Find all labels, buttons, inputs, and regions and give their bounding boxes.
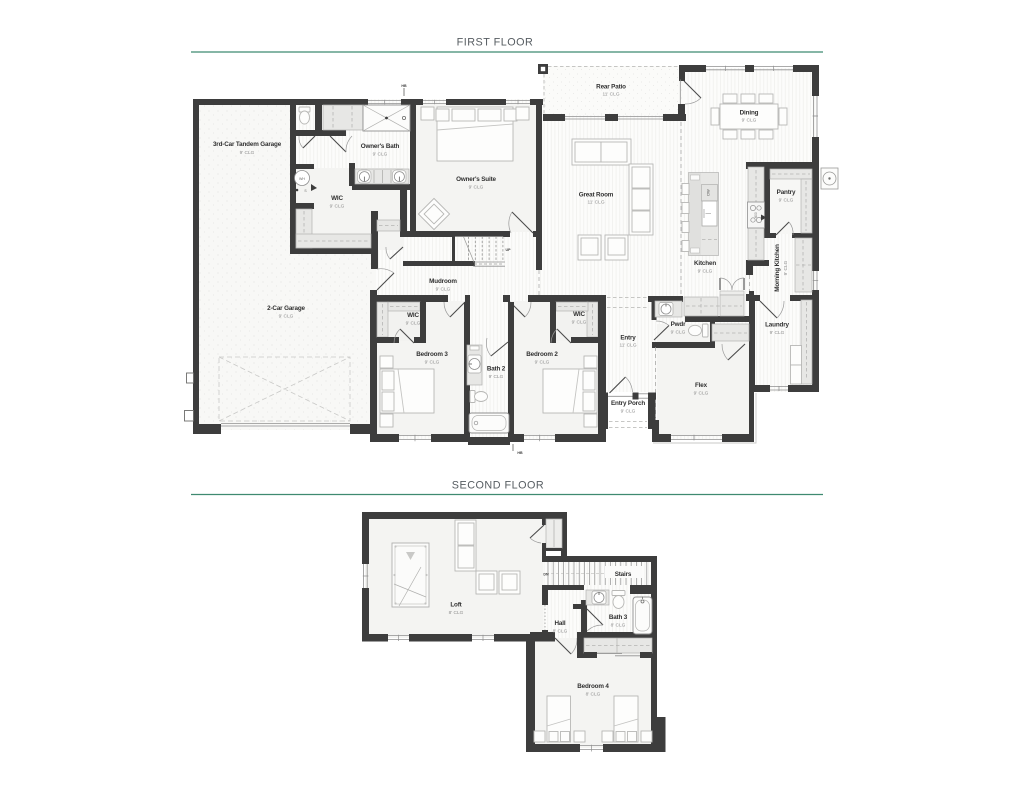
svg-text:FIRST FLOOR: FIRST FLOOR xyxy=(457,37,534,49)
svg-text:Pantry: Pantry xyxy=(777,189,796,196)
svg-text:9' CLG: 9' CLG xyxy=(240,150,255,156)
svg-text:9' CLG: 9' CLG xyxy=(425,360,440,366)
svg-text:8' CLG: 8' CLG xyxy=(611,623,626,629)
svg-text:WIC: WIC xyxy=(331,195,343,202)
svg-text:9' CLG: 9' CLG xyxy=(279,314,294,320)
svg-text:9' CLG: 9' CLG xyxy=(436,287,451,293)
svg-text:Laundry: Laundry xyxy=(765,322,789,329)
svg-text:Bath 2: Bath 2 xyxy=(487,366,506,373)
svg-text:9' CLG: 9' CLG xyxy=(535,360,550,366)
svg-text:8' CLG: 8' CLG xyxy=(449,610,464,616)
svg-text:HB: HB xyxy=(401,84,407,88)
svg-text:Stairs: Stairs xyxy=(615,571,632,578)
svg-text:Hall: Hall xyxy=(555,620,566,627)
svg-text:Morning Kitchen: Morning Kitchen xyxy=(774,244,781,292)
svg-text:9' CLG: 9' CLG xyxy=(698,269,713,275)
svg-text:Owner's Bath: Owner's Bath xyxy=(361,143,400,150)
svg-text:Kitchen: Kitchen xyxy=(694,260,716,267)
svg-text:9' CLG: 9' CLG xyxy=(330,204,345,210)
svg-text:9' CLG: 9' CLG xyxy=(572,320,587,326)
svg-text:9' CLG: 9' CLG xyxy=(779,198,794,204)
svg-text:11' CLG: 11' CLG xyxy=(619,343,636,349)
svg-text:9' CLG: 9' CLG xyxy=(469,185,484,191)
svg-text:DW: DW xyxy=(707,189,711,196)
svg-text:Loft: Loft xyxy=(450,602,462,609)
svg-text:Entry: Entry xyxy=(620,335,636,342)
svg-text:9' CLG: 9' CLG xyxy=(373,152,388,158)
svg-text:DN: DN xyxy=(543,573,549,577)
svg-text:Bedroom 2: Bedroom 2 xyxy=(526,351,558,358)
svg-text:HB: HB xyxy=(517,451,523,455)
svg-text:2-Car Garage: 2-Car Garage xyxy=(267,305,305,312)
svg-text:9' CLG: 9' CLG xyxy=(621,409,636,415)
svg-text:11' CLG: 11' CLG xyxy=(587,200,604,206)
svg-text:11' CLG: 11' CLG xyxy=(602,92,619,98)
svg-text:9' CLG: 9' CLG xyxy=(694,391,709,397)
svg-text:Mudroom: Mudroom xyxy=(429,278,457,285)
svg-text:Owner's Suite: Owner's Suite xyxy=(456,176,496,183)
svg-text:Bath 3: Bath 3 xyxy=(609,614,628,621)
svg-text:9' CLG: 9' CLG xyxy=(406,321,421,327)
svg-text:Bedroom 4: Bedroom 4 xyxy=(577,683,609,690)
svg-text:Great Room: Great Room xyxy=(579,192,614,199)
svg-text:Rear Patio: Rear Patio xyxy=(596,84,626,91)
svg-text:9' CLG: 9' CLG xyxy=(671,330,686,336)
svg-text:9' CLG: 9' CLG xyxy=(742,118,757,124)
svg-text:WH: WH xyxy=(299,177,305,181)
svg-text:9' CLG: 9' CLG xyxy=(770,330,785,336)
svg-text:600: 600 xyxy=(754,212,758,218)
svg-text:UP: UP xyxy=(506,248,512,252)
svg-text:8' CLG: 8' CLG xyxy=(553,629,568,635)
svg-text:3rd-Car Tandem Garage: 3rd-Car Tandem Garage xyxy=(213,141,282,148)
svg-text:Pwdr: Pwdr xyxy=(671,321,686,328)
svg-text:Flex: Flex xyxy=(695,382,708,389)
svg-text:Bedroom 3: Bedroom 3 xyxy=(416,351,448,358)
svg-text:Entry Porch: Entry Porch xyxy=(611,400,645,407)
svg-text:Dining: Dining xyxy=(740,110,759,117)
svg-text:WIC: WIC xyxy=(407,312,419,319)
svg-text:SECOND FLOOR: SECOND FLOOR xyxy=(452,480,544,492)
svg-text:8' CLG: 8' CLG xyxy=(586,692,601,698)
svg-text:9' CLG: 9' CLG xyxy=(783,260,789,275)
svg-text:WIC: WIC xyxy=(573,311,585,318)
svg-text:9' CLG: 9' CLG xyxy=(489,374,504,380)
